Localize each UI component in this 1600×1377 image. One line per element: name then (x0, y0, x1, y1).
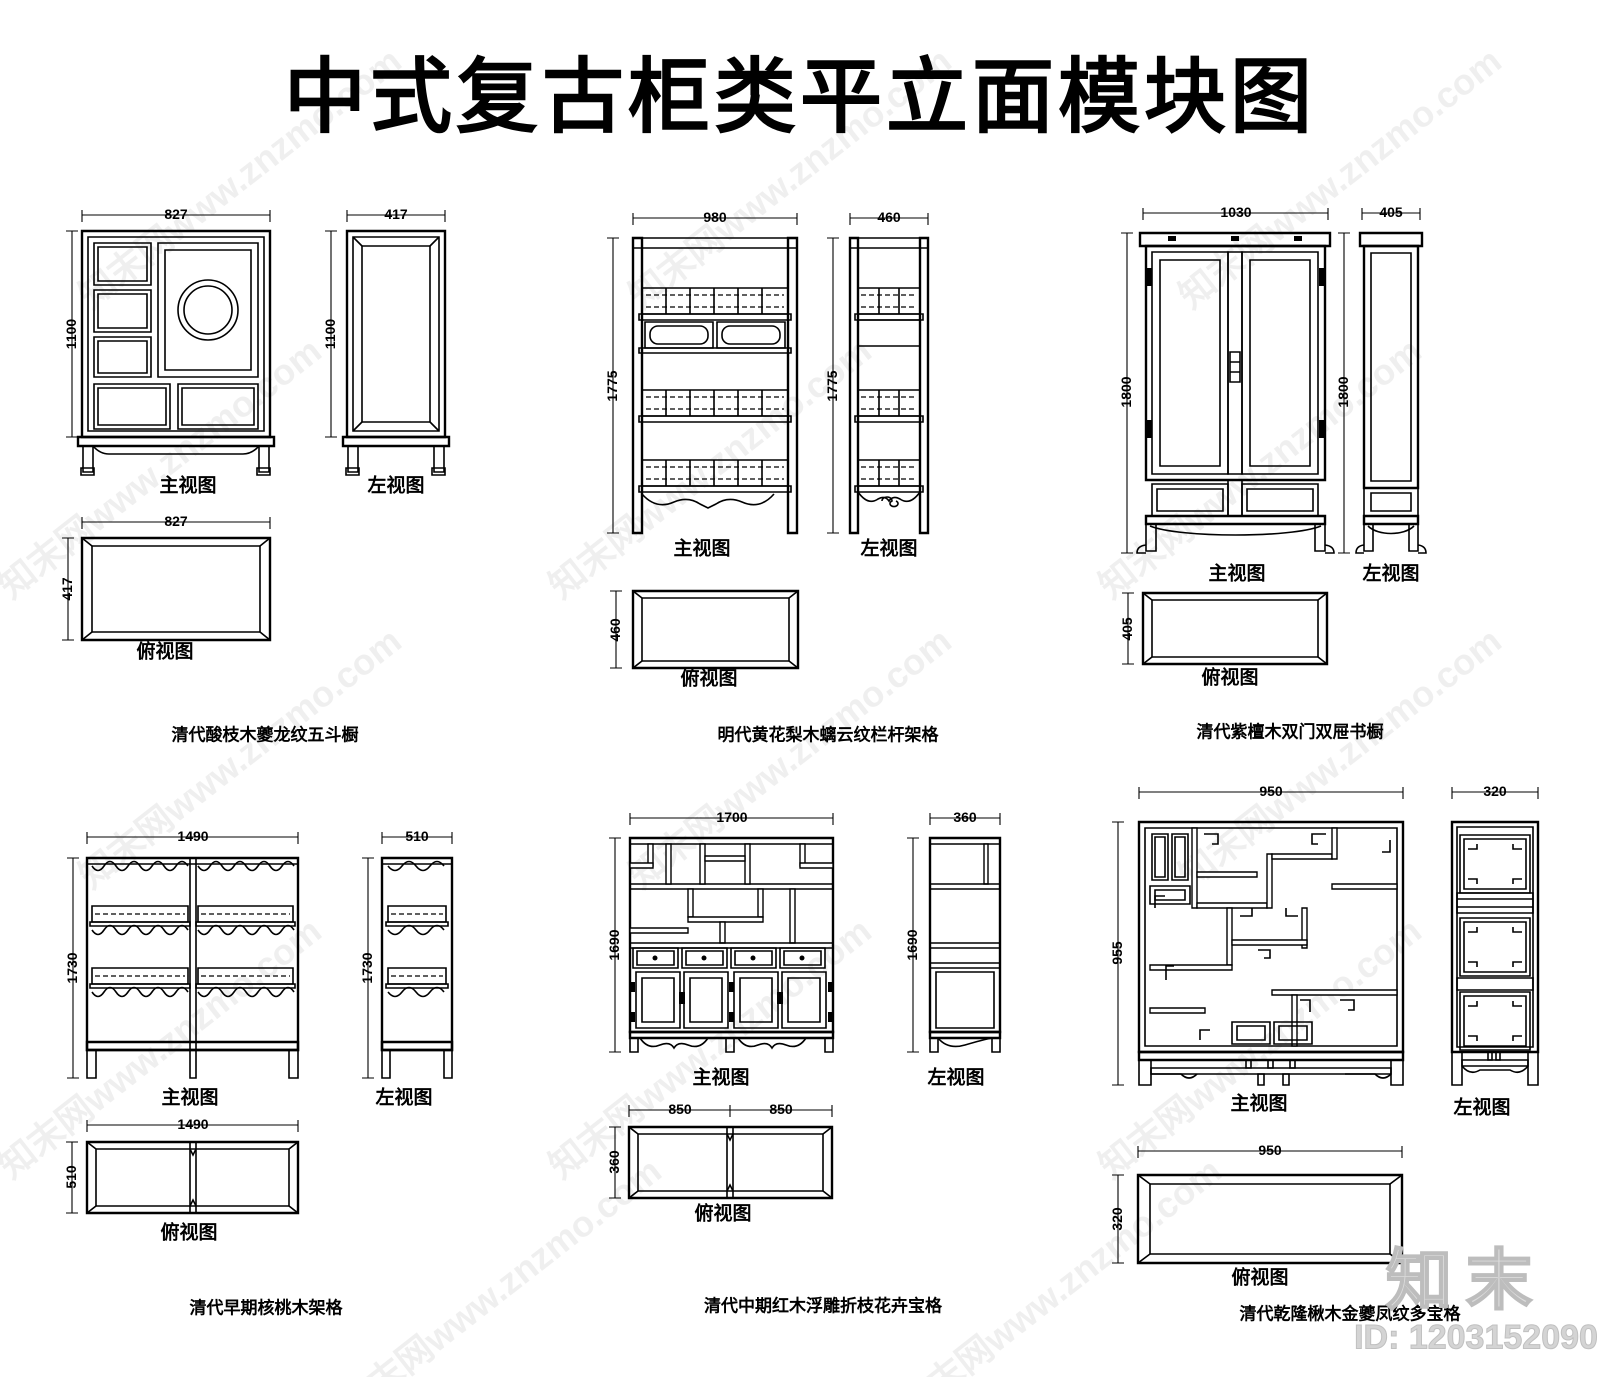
view-label-side: 左视图 (367, 471, 424, 498)
item4-front-drawing (67, 832, 298, 1078)
view-label-side: 左视图 (375, 1083, 432, 1110)
view-label-side: 左视图 (927, 1063, 984, 1090)
dim-label: 1775 (824, 370, 840, 401)
view-label-front: 主视图 (159, 471, 216, 498)
view-label-plan: 俯视图 (1231, 1263, 1288, 1290)
dim-label: 360 (953, 809, 976, 825)
dim-label: 360 (606, 1150, 622, 1173)
dim-label: 460 (877, 209, 900, 225)
item1-side-drawing (325, 210, 449, 475)
dim-label: 950 (1258, 1142, 1281, 1158)
dim-label: 1800 (1118, 376, 1134, 407)
dim-label: 955 (1109, 941, 1125, 964)
item5-caption: 清代中期红木浮雕折枝花卉宝格 (704, 1292, 942, 1317)
dim-label: 1730 (64, 952, 80, 983)
dim-label: 1800 (1335, 376, 1351, 407)
item1-plan-drawing (62, 517, 270, 640)
item1-front-drawing (66, 210, 274, 475)
dim-label: 827 (164, 206, 187, 222)
item3-caption: 清代紫檀木双门双屉书橱 (1197, 718, 1384, 743)
item4-caption: 清代早期核桃木架格 (190, 1294, 343, 1319)
view-label-front: 主视图 (692, 1063, 749, 1090)
dim-label: 1775 (604, 370, 620, 401)
item4-side-drawing (362, 832, 452, 1078)
view-label-plan: 俯视图 (694, 1199, 751, 1226)
dim-label: 417 (384, 206, 407, 222)
view-label-front: 主视图 (161, 1083, 218, 1110)
item2-caption: 明代黄花梨木螭云纹栏杆架格 (718, 721, 939, 746)
dim-label: 850 (769, 1101, 792, 1117)
dim-label: 460 (607, 618, 623, 641)
dim-label: 417 (59, 577, 75, 600)
item5-front-drawing (609, 813, 833, 1052)
view-label-front: 主视图 (673, 534, 730, 561)
dim-label: 1100 (322, 319, 338, 349)
view-label-plan: 俯视图 (160, 1218, 217, 1245)
view-label-plan: 俯视图 (680, 664, 737, 691)
dim-label: 950 (1259, 783, 1282, 799)
dim-label: 850 (668, 1101, 691, 1117)
dim-label: 1490 (177, 828, 208, 844)
dim-label: 1100 (63, 319, 79, 349)
item3-plan-drawing (1122, 593, 1327, 664)
dim-label: 980 (703, 209, 726, 225)
dim-label: 1690 (606, 929, 622, 960)
item5-side-drawing (907, 813, 1000, 1052)
view-label-front: 主视图 (1208, 559, 1265, 586)
dim-label: 1700 (716, 809, 747, 825)
item1-caption: 清代酸枝木夔龙纹五斗橱 (172, 721, 359, 746)
view-label-side: 左视图 (860, 534, 917, 561)
dim-label: 827 (164, 513, 187, 529)
dim-label: 1730 (359, 952, 375, 983)
item5-plan-drawing (609, 1105, 832, 1198)
item3-side-drawing (1338, 208, 1426, 553)
dim-label: 1490 (177, 1116, 208, 1132)
item4-plan-drawing (66, 1120, 298, 1213)
dim-label: 510 (63, 1165, 79, 1188)
dim-label: 510 (405, 828, 428, 844)
dim-label: 1030 (1220, 204, 1251, 220)
item2-plan-drawing (610, 591, 798, 668)
item6-plan-drawing (1112, 1146, 1402, 1263)
view-label-side: 左视图 (1362, 559, 1419, 586)
item2-front-drawing (607, 213, 797, 533)
item6-side-drawing (1452, 787, 1538, 1085)
item3-front-drawing (1121, 208, 1334, 553)
view-label-side: 左视图 (1453, 1093, 1510, 1120)
drawing-sheet: 知末网www.znzmo.com 知末网www.znzmo.com 知末网www… (0, 0, 1600, 1377)
view-label-front: 主视图 (1230, 1089, 1287, 1116)
view-label-plan: 俯视图 (1201, 663, 1258, 690)
site-logo: 知末 (1386, 1227, 1546, 1323)
item6-front-drawing (1112, 787, 1403, 1085)
dim-label: 1690 (904, 929, 920, 960)
dim-label: 320 (1109, 1207, 1125, 1230)
dim-label: 320 (1483, 783, 1506, 799)
view-label-plan: 俯视图 (136, 637, 193, 664)
cad-linework (0, 0, 1600, 1377)
dim-label: 405 (1379, 204, 1402, 220)
image-id-tag: ID: 1203152090 (1354, 1319, 1598, 1358)
dim-label: 405 (1119, 617, 1135, 640)
item2-side-drawing (827, 213, 928, 533)
